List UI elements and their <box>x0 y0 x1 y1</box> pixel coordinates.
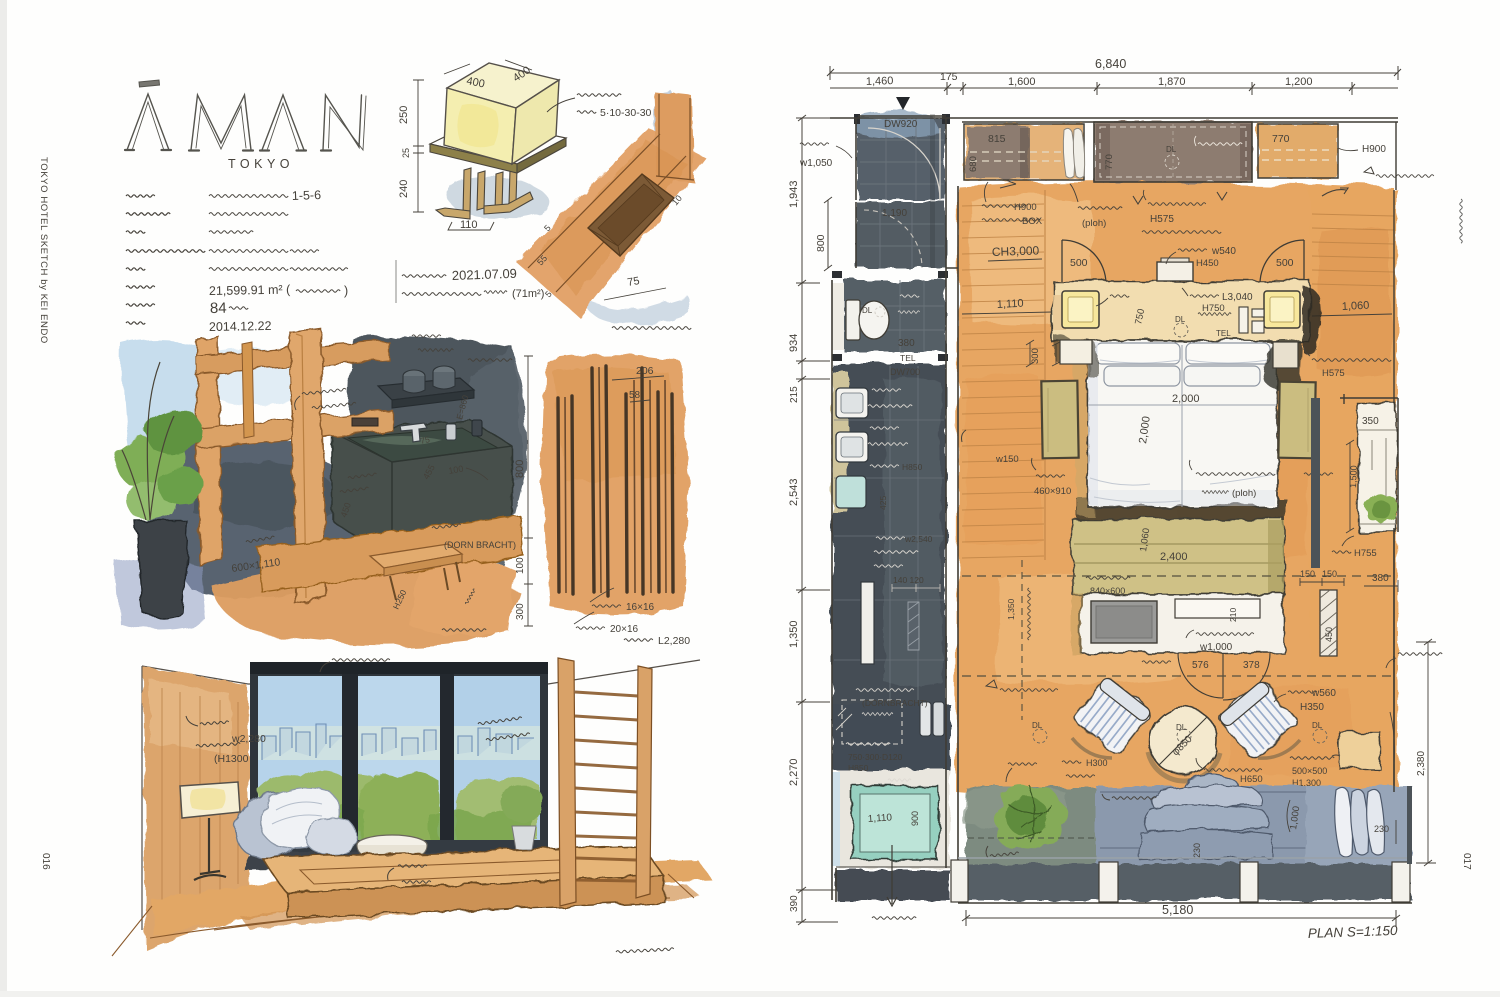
svg-text:(71m²): (71m²) <box>512 288 544 300</box>
svg-text:378: 378 <box>1243 660 1260 671</box>
svg-text:H575: H575 <box>1150 214 1174 225</box>
svg-text:H300: H300 <box>1086 758 1108 768</box>
svg-text:1,110: 1,110 <box>867 812 892 825</box>
svg-text:2,400: 2,400 <box>1160 551 1188 563</box>
svg-text:2,380: 2,380 <box>1416 751 1427 776</box>
svg-text:576: 576 <box>1192 660 1209 671</box>
svg-text:H650: H650 <box>1240 774 1263 785</box>
svg-text:w150: w150 <box>995 454 1019 465</box>
svg-text:2014.12.22: 2014.12.22 <box>209 319 272 334</box>
svg-text:210: 210 <box>1228 608 1238 622</box>
svg-text:H750: H750 <box>1202 303 1225 314</box>
svg-text:450: 450 <box>1324 627 1334 642</box>
svg-text:58: 58 <box>629 390 641 401</box>
svg-text:1,870: 1,870 <box>1158 76 1186 88</box>
svg-text:110: 110 <box>460 219 478 231</box>
svg-text:1,350: 1,350 <box>1006 598 1016 620</box>
svg-text:TEL: TEL <box>900 353 916 363</box>
svg-text:w2,540: w2,540 <box>904 534 933 544</box>
svg-text:6,840: 6,840 <box>1095 57 1126 71</box>
svg-text:750·300·D120: 750·300·D120 <box>848 752 903 762</box>
svg-text:2021.07.09: 2021.07.09 <box>452 266 518 283</box>
svg-text:(H1300: (H1300 <box>214 753 249 765</box>
svg-text:20×16: 20×16 <box>610 624 639 635</box>
svg-text:w1,050: w1,050 <box>799 158 833 169</box>
svg-text:300: 300 <box>1030 348 1041 364</box>
svg-text:H450: H450 <box>1196 258 1219 269</box>
svg-text:017: 017 <box>1461 853 1472 870</box>
svg-text:350: 350 <box>1362 416 1379 427</box>
svg-text:DL: DL <box>1176 723 1187 732</box>
svg-text:1,460: 1,460 <box>866 75 894 88</box>
svg-text:800: 800 <box>514 460 526 478</box>
svg-text:934: 934 <box>788 334 800 352</box>
svg-text:380: 380 <box>898 338 915 349</box>
svg-text:(DORNBRACHT): (DORNBRACHT) <box>862 698 928 708</box>
svg-text:16×16: 16×16 <box>626 602 655 613</box>
svg-text:): ) <box>344 284 348 298</box>
svg-text:BOX: BOX <box>1022 216 1043 227</box>
svg-text:800: 800 <box>815 234 827 252</box>
svg-text:H900: H900 <box>1362 144 1386 155</box>
svg-text:H575: H575 <box>1322 368 1345 379</box>
svg-text:240: 240 <box>398 180 410 198</box>
svg-text:PLAN S=1:150: PLAN S=1:150 <box>1308 923 1399 941</box>
svg-text:L3,040: L3,040 <box>1222 292 1253 303</box>
svg-text:H755: H755 <box>1354 548 1377 559</box>
svg-text:L2,280: L2,280 <box>658 635 690 647</box>
svg-text:DW920: DW920 <box>884 119 918 130</box>
svg-text:H350: H350 <box>1300 702 1324 713</box>
svg-text:815: 815 <box>988 133 1006 145</box>
svg-text:w1,000: w1,000 <box>1199 642 1233 653</box>
svg-text:75: 75 <box>626 275 640 289</box>
svg-text:H850: H850 <box>902 462 923 472</box>
svg-text:230: 230 <box>1192 843 1202 858</box>
svg-text:(ploh): (ploh) <box>1232 488 1256 499</box>
svg-text:1-5-6: 1-5-6 <box>292 188 322 203</box>
svg-text:500: 500 <box>1276 257 1294 269</box>
svg-text:DL: DL <box>1166 145 1177 154</box>
svg-text:250: 250 <box>398 106 410 124</box>
svg-text:425: 425 <box>878 496 888 510</box>
svg-text:(ploh): (ploh) <box>1082 218 1106 229</box>
svg-text:215: 215 <box>789 386 800 403</box>
svg-text:TEL: TEL <box>1216 329 1231 338</box>
svg-text:150: 150 <box>1300 569 1315 579</box>
svg-text:300: 300 <box>515 603 526 620</box>
svg-text:770: 770 <box>1104 154 1115 170</box>
svg-text:016: 016 <box>40 853 51 870</box>
svg-text:DW700: DW700 <box>890 367 920 377</box>
svg-text:25: 25 <box>401 148 411 158</box>
svg-text:1,200: 1,200 <box>1285 76 1313 88</box>
svg-text:770: 770 <box>1272 133 1290 145</box>
svg-text:TOKYO HOTEL SKETCH by KEI ENDO: TOKYO HOTEL SKETCH by KEI ENDO <box>38 157 49 344</box>
svg-text:w540: w540 <box>1211 246 1236 257</box>
svg-text:1,600: 1,600 <box>1008 76 1036 88</box>
svg-text:5·10-30-30: 5·10-30-30 <box>600 107 652 119</box>
svg-text:175: 175 <box>940 71 958 83</box>
svg-text:(DORN BRACHT): (DORN BRACHT) <box>444 540 516 550</box>
svg-text:1,060: 1,060 <box>1342 300 1370 313</box>
svg-text:230: 230 <box>1374 824 1389 834</box>
svg-text:1,943: 1,943 <box>788 180 800 208</box>
svg-text:150: 150 <box>1322 569 1337 579</box>
svg-text:CH3,000: CH3,000 <box>992 243 1040 259</box>
svg-text:500: 500 <box>1070 257 1088 269</box>
svg-text:900: 900 <box>910 811 920 826</box>
svg-text:2,543: 2,543 <box>788 478 800 506</box>
svg-text:500×500: 500×500 <box>1292 766 1327 776</box>
svg-text:2,270: 2,270 <box>788 758 800 786</box>
svg-text:100: 100 <box>515 557 526 574</box>
svg-text:460×910: 460×910 <box>1034 486 1071 497</box>
svg-text:1,190: 1,190 <box>882 208 907 219</box>
svg-text:5,180: 5,180 <box>1162 903 1193 917</box>
svg-text:2,000: 2,000 <box>1172 393 1200 405</box>
svg-text:1,110: 1,110 <box>997 298 1024 311</box>
svg-text:TOKYO: TOKYO <box>228 157 294 171</box>
svg-text:390: 390 <box>789 895 800 912</box>
svg-text:H900: H900 <box>1014 202 1037 213</box>
svg-text:21,599.91 m² (: 21,599.91 m² ( <box>209 283 291 298</box>
svg-text:680: 680 <box>968 156 979 172</box>
svg-text:140 120: 140 120 <box>893 575 924 585</box>
svg-text:206: 206 <box>636 365 654 377</box>
svg-text:w560: w560 <box>1311 688 1336 699</box>
svg-text:1,350: 1,350 <box>788 620 800 648</box>
svg-text:380: 380 <box>1372 573 1389 584</box>
svg-text:DL: DL <box>1175 315 1186 324</box>
svg-text:84: 84 <box>210 300 227 317</box>
svg-text:DL: DL <box>862 306 873 315</box>
svg-text:w2,280: w2,280 <box>231 733 266 745</box>
